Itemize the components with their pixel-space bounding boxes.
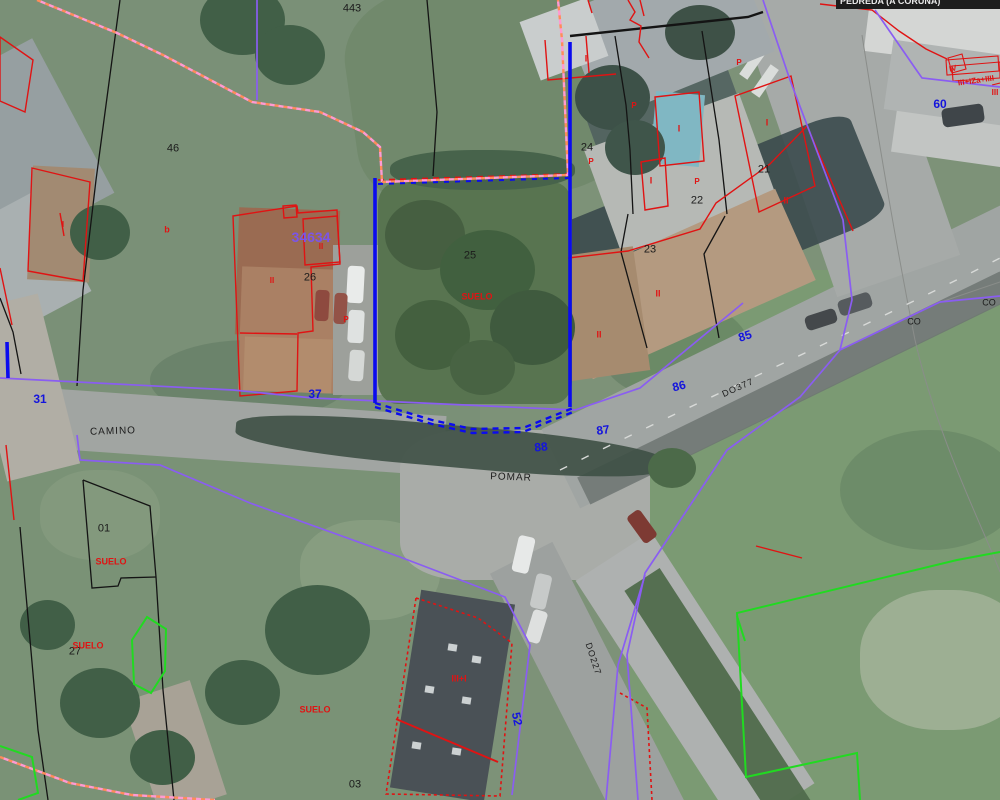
map-label-31: 31 — [33, 393, 46, 405]
map-label-i: I — [766, 119, 769, 128]
map-label-suelo: SUELO — [299, 706, 330, 715]
map-label-camino: CAMINO — [90, 426, 136, 438]
map-label-iii: III — [992, 89, 999, 97]
map-label-p: P — [694, 178, 699, 186]
map-label-ii: II — [655, 290, 660, 299]
map-label-ii: II — [596, 331, 601, 340]
map-label-37: 37 — [308, 388, 321, 400]
map-label-34634: 34634 — [292, 230, 331, 244]
map-label-88: 88 — [534, 440, 549, 453]
map-label-87: 87 — [596, 423, 611, 437]
map-labels-layer: 44346242526232221012703COCOCAMINOPOMARDO… — [0, 0, 1000, 800]
map-label-iv: IV — [948, 64, 957, 73]
map-label-iii-iza-iiii: III+IZa+IIII — [957, 75, 994, 88]
map-label-co: CO — [907, 318, 921, 327]
map-label-i: I — [585, 55, 588, 64]
map-label-p: P — [588, 158, 593, 166]
map-label-suelo: SUELO — [95, 558, 126, 567]
map-label-do227: DO227 — [584, 642, 603, 677]
map-label-i: I — [650, 177, 653, 186]
map-label-52: 52 — [510, 711, 525, 727]
map-label-i: I — [62, 221, 64, 229]
map-label-24: 24 — [581, 143, 593, 154]
map-label-86: 86 — [671, 379, 687, 394]
info-bar: PEDREDA (A CORUÑA) — [836, 0, 1000, 9]
map-label-443: 443 — [343, 4, 361, 15]
map-label-ii: II — [783, 197, 788, 206]
map-label-p: P — [631, 102, 636, 110]
map-label-p: P — [343, 316, 348, 324]
map-label-ii: II — [270, 277, 274, 285]
map-label-suelo: SUELO — [461, 293, 492, 302]
map-label-85: 85 — [737, 328, 753, 344]
map-label-22: 22 — [691, 196, 703, 207]
info-bar-text: PEDREDA (A CORUÑA) — [836, 0, 1000, 6]
map-label-03: 03 — [349, 780, 361, 791]
map-label-ii: II — [319, 243, 323, 251]
map-label-p: P — [736, 59, 741, 67]
map-label-46: 46 — [167, 144, 179, 155]
map-label-23: 23 — [644, 245, 656, 256]
map-label-co: CO — [982, 299, 996, 308]
map-label-pomar: POMAR — [490, 472, 532, 483]
map-label-i: I — [678, 125, 681, 134]
map-label-21: 21 — [758, 165, 770, 176]
map-label-26: 26 — [304, 273, 316, 284]
map-label-suelo: SUELO — [72, 642, 103, 651]
map-label-60: 60 — [933, 98, 946, 110]
map-label-01: 01 — [98, 524, 110, 535]
map-label-25: 25 — [464, 251, 476, 262]
cadastral-map-canvas[interactable]: 44346242526232221012703COCOCAMINOPOMARDO… — [0, 0, 1000, 800]
map-label-iii-i: III+I — [451, 675, 466, 684]
map-label-do377: DO377 — [721, 377, 755, 399]
map-label-b: b — [164, 226, 170, 235]
